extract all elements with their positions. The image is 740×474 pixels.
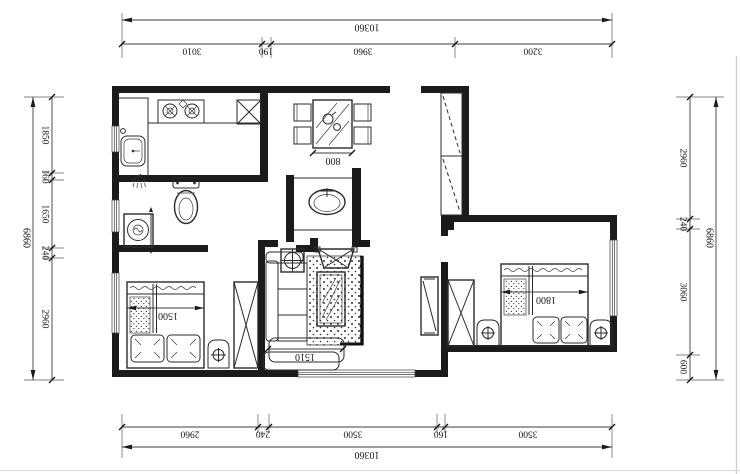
bedroom-small: 1500: [127, 282, 258, 368]
exterior-walls: [112, 86, 617, 377]
dim-label: 600: [678, 360, 688, 375]
dimension-chain-right: 2960 240 3060 600 6860: [676, 94, 724, 383]
basin-icon: [294, 178, 352, 230]
dim-label: 2960: [40, 310, 50, 329]
dim-label: 3010: [182, 46, 201, 56]
stove-icon: [158, 100, 204, 123]
dimension-chain-bottom: 2960 240 3500 160 3500 10360: [119, 414, 615, 460]
dining-table-dimension: 800: [310, 150, 355, 166]
tv-icon: [421, 277, 438, 335]
rug-icon: [307, 256, 363, 345]
toilet-icon: [173, 178, 199, 224]
sofa-dimension: 1510: [265, 346, 346, 362]
furniture-dim-label: 1510: [295, 351, 315, 362]
nightstand-icon: [590, 320, 612, 346]
kitchen: [119, 98, 261, 175]
dim-label: 240: [40, 246, 50, 261]
bed-icon: [127, 282, 204, 368]
closet-dashed-icon: [441, 93, 462, 215]
dim-label: 10360: [355, 449, 380, 460]
nightstand-icon: [477, 320, 499, 346]
dimension-chain-top: 10360 3010 190 3960 3200: [119, 13, 615, 58]
dim-label: 240: [256, 429, 271, 439]
dim-label: 3500: [518, 429, 537, 439]
dim-label: 1650: [40, 205, 50, 224]
floor-plan-sheet: 10360 3010 190 3960 3200 2960 240 3500 1…: [0, 0, 740, 474]
furniture-dim-label: 1500: [158, 310, 178, 321]
dim-label: 6860: [21, 228, 32, 248]
dim-label: 3960: [353, 46, 372, 56]
dim-label: 3060: [678, 283, 688, 302]
dim-label: 190: [259, 46, 274, 56]
bedroom-large: 1800: [421, 264, 612, 346]
pillow-icon: [167, 335, 200, 362]
kitchen-sink-icon: [121, 136, 145, 166]
pillow-icon: [533, 317, 559, 343]
teapot-icon: [323, 112, 340, 130]
wardrobe-x-icon: [448, 280, 474, 346]
nightstand-icon: [208, 340, 229, 368]
pillow-icon: [561, 317, 587, 343]
dim-label: 160: [434, 429, 449, 439]
interior-walls: [112, 93, 448, 377]
furniture-dim-label: 1800: [536, 294, 556, 305]
pillow-icon: [131, 335, 164, 362]
dining-set-icon: 800: [294, 100, 371, 166]
dim-label: 1850: [40, 126, 50, 145]
dimension-chain-left: 6860 1850 160 1650 240 2960: [21, 94, 65, 383]
dim-label: 2960: [180, 429, 199, 439]
sheet-edge-lines: [0, 56, 740, 474]
dim-label: 6860: [704, 228, 715, 248]
furniture-dim-label: 800: [326, 155, 341, 166]
dim-label: 2960: [678, 149, 688, 168]
washing-machine-icon: [124, 207, 153, 254]
dim-label: 3500: [343, 429, 362, 439]
dim-label: 240: [678, 217, 688, 232]
dim-label: 3200: [523, 46, 542, 56]
counter-knob-icon: [121, 129, 126, 134]
dim-label: 10360: [355, 22, 380, 33]
floor-plan-canvas: 10360 3010 190 3960 3200 2960 240 3500 1…: [0, 0, 740, 474]
living-room: 1510: [263, 247, 363, 370]
cabinet-x-icon: [237, 100, 261, 124]
wardrobe-x-icon: [234, 282, 258, 368]
dim-label: 160: [40, 169, 50, 184]
